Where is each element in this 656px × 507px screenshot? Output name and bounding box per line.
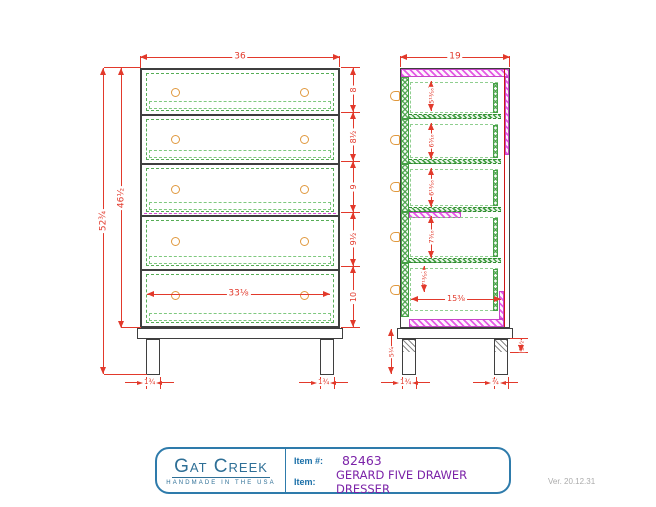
dim-label: 19 xyxy=(447,52,462,61)
drawer-box-outline xyxy=(410,82,498,113)
drawer-box-outline xyxy=(410,217,498,257)
drawer-back-section xyxy=(493,125,498,158)
drawer-4 xyxy=(142,217,338,271)
drawer-box-outline xyxy=(410,124,498,158)
item-number-label: Item #: xyxy=(294,456,342,466)
dim-opening-3: 6¹³⁄₁₆ xyxy=(431,168,432,207)
drawer-4-bottom-edge xyxy=(149,256,331,264)
dim-label: 7⁵⁄₁₆ xyxy=(428,229,435,244)
version-text: Ver. 20.12.31 xyxy=(548,477,595,486)
item-number-value: 82463 xyxy=(342,453,382,468)
dim-label: 46½ xyxy=(117,186,126,210)
knob-icon xyxy=(300,88,309,97)
dim-foot-height: 1½ xyxy=(521,339,522,352)
knob-icon xyxy=(390,232,400,242)
knob-icon xyxy=(300,185,309,194)
dim-label: 6¹³⁄₁₆ xyxy=(428,179,435,197)
bottom-panel-section xyxy=(409,319,504,327)
knob-icon xyxy=(390,285,400,295)
side-drawer-1 xyxy=(401,77,509,119)
drawer-front-section xyxy=(401,164,409,212)
title-block-fields: Item #: 82463 Item: GERARD FIVE DRAWER D… xyxy=(286,449,509,492)
brand-logo: Gat Creek HANDMADE IN THE USA xyxy=(157,449,286,492)
knob-icon xyxy=(171,88,180,97)
drawer-box-outline xyxy=(410,169,498,206)
item-name-label: Item: xyxy=(294,477,336,487)
drawer-front-section xyxy=(401,212,409,263)
side-drawer-4 xyxy=(401,212,509,263)
dim-leg-height: 5¼ xyxy=(391,329,392,374)
drawer-back-section xyxy=(493,83,498,113)
dim-left-leg-width: 1¾ xyxy=(125,379,174,386)
side-case xyxy=(400,68,510,328)
dim-overall-height: 52¾ xyxy=(103,68,104,374)
dim-label: 5¹³⁄₁₆ xyxy=(428,87,435,105)
drawer-3-bottom-edge xyxy=(149,202,331,210)
drawer-2 xyxy=(142,116,338,165)
front-base-rail xyxy=(137,328,343,339)
extension-line xyxy=(341,327,360,328)
dim-inner-width: 33⅛ xyxy=(147,294,330,295)
dim-label: 9 xyxy=(349,182,357,191)
drawer-front-section xyxy=(401,263,409,317)
drawer-5-bottom-edge xyxy=(149,313,331,321)
dim-label: 52¾ xyxy=(99,209,108,233)
dim-opening-2: 6⁵⁄₁₆ xyxy=(431,123,432,159)
dim-label: 33⅛ xyxy=(226,289,250,298)
side-base-rail xyxy=(397,328,513,339)
dim-label: 7¹³⁄₁₆ xyxy=(421,270,428,288)
leg-section-hatch xyxy=(403,340,415,352)
top-panel-section xyxy=(401,69,509,77)
knob-icon xyxy=(390,135,400,145)
dim-label: 1½ xyxy=(518,339,525,351)
dim-opening-4: 7⁵⁄₁₆ xyxy=(431,216,432,258)
side-drawer-5 xyxy=(401,263,509,317)
side-front-leg xyxy=(402,339,416,375)
dim-drawer-3-height: 9 xyxy=(353,161,354,212)
dim-right-leg-width: 1¾ xyxy=(299,379,348,386)
dim-label: 6⁵⁄₁₆ xyxy=(428,133,435,148)
brand-name: Gat Creek xyxy=(172,457,270,478)
drawer-2-bottom-edge xyxy=(149,150,331,158)
dim-opening-5: 7¹³⁄₁₆ xyxy=(424,266,425,292)
dim-drawer-1-height: 8 xyxy=(353,68,354,112)
side-drawer-3 xyxy=(401,164,509,212)
dim-label: 9½ xyxy=(349,231,357,248)
drawing-sheet: 36 52¾ 46½ 8 8½ 9 9½ 10 xyxy=(0,0,656,507)
drawer-back-section xyxy=(493,218,498,257)
dim-back-leg-depth: ¾ xyxy=(473,379,518,386)
dim-label: 8 xyxy=(349,85,357,94)
knob-icon xyxy=(300,135,309,144)
dim-label: 1¾ xyxy=(317,379,330,386)
dim-label: 36 xyxy=(232,52,247,61)
dim-label: 8½ xyxy=(349,128,357,145)
knob-icon xyxy=(390,91,400,101)
side-back-leg xyxy=(494,339,508,375)
drawer-3 xyxy=(142,165,338,217)
dim-overall-depth: 19 xyxy=(400,57,510,58)
extension-line xyxy=(122,327,141,328)
dim-opening-1: 5¹³⁄₁₆ xyxy=(431,81,432,111)
drawer-front-section xyxy=(401,119,409,164)
drawer-back-section xyxy=(493,269,498,311)
item-name-row: Item: GERARD FIVE DRAWER DRESSER xyxy=(294,468,501,496)
brand-tagline: HANDMADE IN THE USA xyxy=(166,480,275,486)
dim-front-leg-depth: 1¾ xyxy=(381,379,430,386)
item-number-row: Item #: 82463 xyxy=(294,453,501,468)
side-drawer-2 xyxy=(401,119,509,164)
drawer-back-section xyxy=(493,170,498,206)
title-block: Gat Creek HANDMADE IN THE USA Item #: 82… xyxy=(155,447,511,494)
dim-drawer-2-height: 8½ xyxy=(353,112,354,161)
drawer-1-bottom-edge xyxy=(149,101,331,109)
dim-label: 10 xyxy=(349,289,357,303)
dim-label: 15⅜ xyxy=(445,295,467,303)
dim-drawer-5-height: 10 xyxy=(353,266,354,327)
front-right-leg xyxy=(320,339,334,375)
item-name-value: GERARD FIVE DRAWER DRESSER xyxy=(336,468,501,496)
knob-icon xyxy=(390,182,400,192)
drawer-front-section xyxy=(401,77,409,119)
dim-label: ¾ xyxy=(491,379,500,386)
leg-section-hatch xyxy=(495,340,507,352)
drawer-1 xyxy=(142,70,338,116)
knob-icon xyxy=(300,291,309,300)
dim-drawer-4-height: 9½ xyxy=(353,212,354,266)
dim-overall-width: 36 xyxy=(140,57,340,58)
dust-panel-line xyxy=(144,213,336,214)
front-left-leg xyxy=(146,339,160,375)
extension-line xyxy=(104,374,147,375)
dim-label: 1¾ xyxy=(143,379,156,386)
dim-label: 1¾ xyxy=(399,379,412,386)
dim-inner-depth: 15⅜ xyxy=(411,299,501,300)
dim-case-height: 46½ xyxy=(121,68,122,328)
dim-label: 5¼ xyxy=(388,345,395,357)
